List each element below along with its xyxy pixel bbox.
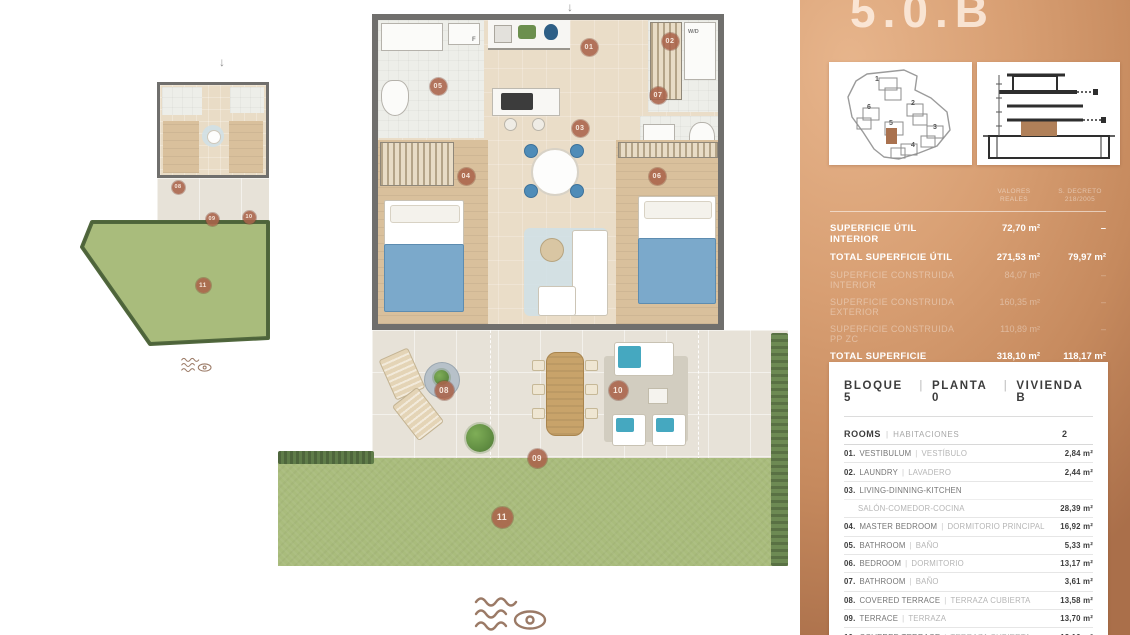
separator: | bbox=[915, 449, 917, 458]
room-badge-07: 07 bbox=[650, 87, 667, 104]
surface-value-real: 318,10 m² bbox=[968, 351, 1040, 362]
room-badge-10: 10 bbox=[609, 381, 628, 400]
plan-label-W/D: W/D bbox=[688, 29, 699, 35]
room-area: 13,17 m² bbox=[1060, 559, 1093, 568]
hedge-right bbox=[771, 333, 788, 566]
bed-04 bbox=[384, 200, 464, 312]
room-area: 2,44 m² bbox=[1065, 468, 1093, 477]
section-diagram bbox=[977, 62, 1120, 165]
room-number: 07. bbox=[844, 577, 855, 586]
site-plan-diagram bbox=[829, 62, 972, 165]
room-number: 09. bbox=[844, 614, 855, 623]
room-area: 13,58 m² bbox=[1060, 596, 1093, 605]
room-number: 02. bbox=[844, 468, 855, 477]
room-area: 3,61 m² bbox=[1065, 577, 1093, 586]
kitchen-sink bbox=[494, 25, 512, 43]
dining-chair bbox=[524, 184, 538, 198]
separator: | bbox=[886, 430, 888, 439]
separator: | bbox=[944, 596, 946, 605]
wardrobe-04 bbox=[380, 142, 454, 186]
surface-table: VALORES REALES S. DECRETO 218/2005 SUPER… bbox=[830, 188, 1106, 377]
room-row: 05. BATHROOM | BAÑO 5,33 m² bbox=[844, 537, 1093, 555]
room-number: 05. bbox=[844, 541, 855, 550]
room-badge-05: 05 bbox=[430, 78, 447, 95]
col-header-valores: VALORES REALES bbox=[988, 188, 1040, 205]
rooms-label-en: ROOMS bbox=[844, 429, 881, 439]
pillow bbox=[390, 205, 461, 223]
chaise bbox=[538, 286, 576, 316]
surface-label: SUPERFICIE CONSTRUIDA EXTERIOR bbox=[830, 297, 968, 317]
outdoor-dining-table bbox=[546, 352, 584, 436]
info-panel: 5.0.B 123456 bbox=[800, 0, 1130, 635]
dining-chair bbox=[570, 184, 584, 198]
room-name-es-line2: SALÓN-COMEDOR-COCINA bbox=[858, 504, 965, 513]
surface-divider bbox=[830, 211, 1106, 212]
room-name-es: TERRAZA CUBIERTA bbox=[951, 596, 1031, 605]
surface-row: TOTAL SUPERFICIE ÚTIL 271,53 m² 79,97 m² bbox=[830, 249, 1106, 267]
separator: | bbox=[1004, 380, 1009, 404]
outdoor-sofa bbox=[612, 414, 646, 446]
mini-bedroom-left bbox=[163, 121, 199, 173]
cushion bbox=[656, 418, 674, 432]
room-badge-08: 08 bbox=[172, 181, 185, 194]
blanket bbox=[638, 238, 716, 304]
bathtub bbox=[381, 23, 443, 51]
plan-label-F: F bbox=[472, 37, 476, 43]
highlighted-block-5 bbox=[886, 128, 897, 144]
dining-chair bbox=[570, 144, 584, 158]
bedroom-06 bbox=[616, 140, 718, 324]
room-name-en: VESTIBULUM bbox=[859, 449, 911, 458]
room-row: 06. BEDROOM | DORMITORIO 13,17 m² bbox=[844, 555, 1093, 573]
room-name-es: DORMITORIO bbox=[911, 559, 964, 568]
stool bbox=[504, 118, 517, 131]
room-name-es: VESTÍBULO bbox=[922, 449, 968, 458]
hedge-top bbox=[278, 451, 374, 464]
surface-label: TOTAL SUPERFICIE ÚTIL bbox=[830, 252, 968, 263]
room-area: 16,92 m² bbox=[1060, 522, 1093, 531]
section-plan-card bbox=[977, 62, 1120, 165]
site-block-2: 2 bbox=[911, 100, 915, 107]
mini-floor bbox=[160, 85, 266, 175]
kitchen-island bbox=[492, 88, 560, 116]
surface-row: SUPERFICIE CONSTRUIDA INTERIOR 84,07 m² … bbox=[830, 267, 1106, 294]
surface-row: SUPERFICIE ÚTIL INTERIOR 72,70 m² – bbox=[830, 220, 1106, 249]
floor-label: PLANTA 0 bbox=[932, 380, 996, 404]
room-name-en: BATHROOM bbox=[859, 541, 905, 550]
surface-row: SUPERFICIE CONSTRUIDA EXTERIOR 160,35 m²… bbox=[830, 294, 1106, 321]
pillow bbox=[644, 201, 713, 219]
daybed bbox=[614, 342, 674, 376]
surface-value-decreto: – bbox=[1040, 270, 1106, 280]
brochure-page: 010203040506070809101108091011 ↓↓W/DF 5.… bbox=[0, 0, 1130, 635]
unit-title: 5.0.B bbox=[850, 0, 995, 38]
rooms-table-header: ROOMS | HABITACIONES 2 bbox=[844, 417, 1093, 445]
surface-value-decreto: 79,97 m² bbox=[1040, 252, 1106, 263]
outdoor-chair bbox=[532, 408, 545, 419]
room-name-en: TERRACE bbox=[859, 614, 898, 623]
rooms-count: 2 bbox=[1062, 429, 1093, 439]
mini-laundry bbox=[230, 87, 264, 113]
room-area-line2: 28,39 m² bbox=[1060, 504, 1093, 513]
room-name-es: BAÑO bbox=[916, 541, 939, 550]
surface-value-decreto: – bbox=[1040, 297, 1106, 307]
room-row: 01. VESTIBULUM | VESTÍBULO 2,84 m² bbox=[844, 445, 1093, 463]
surface-value-real: 84,07 m² bbox=[968, 270, 1040, 280]
separator: | bbox=[910, 541, 912, 550]
wardrobe-06 bbox=[618, 142, 718, 158]
room-name-en: LAUNDRY bbox=[859, 468, 898, 477]
garden-plant bbox=[466, 424, 494, 452]
site-block-5: 5 bbox=[889, 120, 893, 127]
entrance-arrow-icon: ↓ bbox=[567, 0, 573, 14]
mini-apartment-plan bbox=[157, 82, 269, 178]
unit-card-header: BLOQUE 5 | PLANTA 0 | VIVIENDA B bbox=[844, 376, 1093, 417]
room-area: 2,84 m² bbox=[1065, 449, 1093, 458]
side-table bbox=[648, 388, 668, 404]
surface-value-decreto: 118,17 m² bbox=[1040, 351, 1106, 362]
room-number: 06. bbox=[844, 559, 855, 568]
room-name-es: DORMITORIO PRINCIPAL bbox=[947, 522, 1044, 531]
surface-label: SUPERFICIE ÚTIL INTERIOR bbox=[830, 223, 968, 245]
outdoor-chair bbox=[585, 384, 598, 395]
highlighted-floor-0 bbox=[1021, 120, 1057, 136]
room-name-es: TERRAZA bbox=[908, 614, 946, 623]
surface-value-decreto: – bbox=[1040, 223, 1106, 234]
outdoor-sofa bbox=[652, 414, 686, 446]
mini-table bbox=[207, 130, 221, 144]
room-badge-09: 09 bbox=[528, 449, 547, 468]
room-number: 08. bbox=[844, 596, 855, 605]
mini-garden bbox=[70, 208, 302, 356]
room-name-en: BEDROOM bbox=[859, 559, 901, 568]
room-badge-09: 09 bbox=[206, 213, 219, 226]
surface-value-real: 271,53 m² bbox=[968, 252, 1040, 263]
armchair bbox=[540, 238, 564, 262]
site-block-4: 4 bbox=[911, 142, 915, 149]
room-row: 07. BATHROOM | BAÑO 3,61 m² bbox=[844, 573, 1093, 591]
col-header-decreto: S. DECRETO 218/2005 bbox=[1054, 188, 1106, 205]
unit-label: VIVIENDA B bbox=[1016, 380, 1093, 404]
room-area: 13,70 m² bbox=[1060, 614, 1093, 623]
room-badge-06: 06 bbox=[649, 168, 666, 185]
room-badge-08: 08 bbox=[435, 381, 454, 400]
towel bbox=[618, 346, 641, 368]
separator: | bbox=[902, 614, 904, 623]
master-bedroom-04 bbox=[378, 140, 488, 324]
site-plan-card: 123456 bbox=[829, 62, 972, 165]
entrance-arrow-icon: ↓ bbox=[219, 55, 225, 69]
separator: | bbox=[941, 522, 943, 531]
garden-area bbox=[278, 458, 788, 566]
bathroom-05 bbox=[378, 20, 484, 138]
outdoor-chair bbox=[585, 408, 598, 419]
room-row: 04. MASTER BEDROOM | DORMITORIO PRINCIPA… bbox=[844, 518, 1093, 536]
room-badge-04: 04 bbox=[458, 168, 475, 185]
separator: | bbox=[902, 468, 904, 477]
room-row: 10. COVERED TERRACE | TERRAZA CUBIERTA 1… bbox=[844, 628, 1093, 635]
vase bbox=[544, 24, 558, 40]
outdoor-chair bbox=[532, 384, 545, 395]
room-name-es: LAVADERO bbox=[908, 468, 951, 477]
site-block-6: 6 bbox=[867, 104, 871, 111]
cutting-board bbox=[518, 25, 536, 39]
unit-card: BLOQUE 5 | PLANTA 0 | VIVIENDA B ROOMS |… bbox=[829, 362, 1108, 635]
surface-column-headers: VALORES REALES S. DECRETO 218/2005 bbox=[830, 188, 1106, 205]
bed-06 bbox=[638, 196, 716, 304]
block-label: BLOQUE 5 bbox=[844, 380, 911, 404]
dining-chair bbox=[524, 144, 538, 158]
sofa bbox=[572, 230, 608, 316]
room-row: 02. LAUNDRY | LAVADERO 2,44 m² bbox=[844, 463, 1093, 481]
toilet bbox=[381, 80, 409, 116]
room-badge-03: 03 bbox=[572, 120, 589, 137]
room-row: 09. TERRACE | TERRAZA 13,70 m² bbox=[844, 610, 1093, 628]
room-name-en: COVERED TERRACE bbox=[859, 596, 940, 605]
surface-row: SUPERFICIE CONSTRUIDA PP ZC 110,89 m² – bbox=[830, 321, 1106, 348]
stool bbox=[532, 118, 545, 131]
room-number: 04. bbox=[844, 522, 855, 531]
surface-label: SUPERFICIE CONSTRUIDA INTERIOR bbox=[830, 270, 968, 290]
room-name-es: BAÑO bbox=[916, 577, 939, 586]
room-name-en: MASTER BEDROOM bbox=[859, 522, 937, 531]
surface-value-real: 110,89 m² bbox=[968, 324, 1040, 334]
site-block-1: 1 bbox=[875, 76, 879, 83]
room-row: 08. COVERED TERRACE | TERRAZA CUBIERTA 1… bbox=[844, 592, 1093, 610]
separator: | bbox=[905, 559, 907, 568]
cushion bbox=[616, 418, 634, 432]
surface-label: SUPERFICIE CONSTRUIDA PP ZC bbox=[830, 324, 968, 344]
room-row: 03. LIVING-DINNING-KITCHEN | SALÓN-COMED… bbox=[844, 482, 1093, 518]
rooms-label-es: HABITACIONES bbox=[893, 430, 959, 439]
surface-value-real: 160,35 m² bbox=[968, 297, 1040, 307]
room-badge-11: 11 bbox=[196, 278, 211, 293]
mini-bedroom-right bbox=[229, 121, 263, 173]
cooktop bbox=[501, 93, 533, 110]
separator: | bbox=[919, 380, 924, 404]
mini-bathroom bbox=[162, 87, 202, 115]
brand-wave-eye-logo bbox=[466, 594, 558, 634]
site-block-3: 3 bbox=[933, 124, 937, 131]
room-badge-11: 11 bbox=[492, 507, 513, 528]
outdoor-chair bbox=[585, 360, 598, 371]
room-badge-10: 10 bbox=[243, 211, 256, 224]
kitchen-counter bbox=[488, 20, 570, 50]
brand-wave-eye-logo-small bbox=[180, 354, 214, 376]
room-name-en: BATHROOM bbox=[859, 577, 905, 586]
room-name-en: LIVING-DINNING-KITCHEN bbox=[859, 486, 961, 495]
room-area: 5,33 m² bbox=[1065, 541, 1093, 550]
terrace-divider bbox=[698, 330, 700, 460]
room-badge-02: 02 bbox=[662, 33, 679, 50]
separator: | bbox=[910, 577, 912, 586]
surface-value-real: 72,70 m² bbox=[968, 223, 1040, 234]
surface-value-decreto: – bbox=[1040, 324, 1106, 334]
room-badge-01: 01 bbox=[581, 39, 598, 56]
room-number: 01. bbox=[844, 449, 855, 458]
room-number: 03. bbox=[844, 486, 855, 495]
blanket bbox=[384, 244, 464, 312]
outdoor-chair bbox=[532, 360, 545, 371]
